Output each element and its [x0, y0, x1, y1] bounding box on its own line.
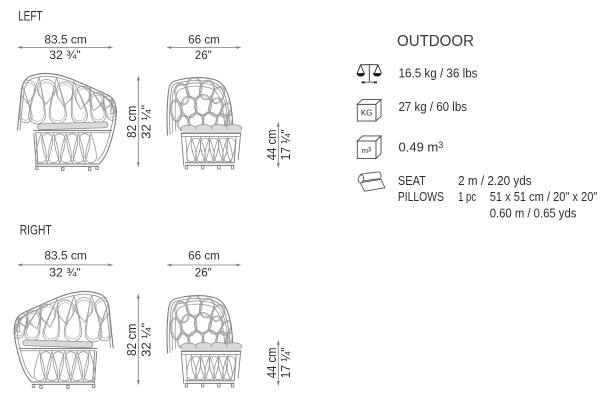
svg-text:OUTDOOR: OUTDOOR [397, 33, 474, 50]
svg-text:0.49 m3: 0.49 m3 [399, 139, 444, 154]
svg-text:RIGHT: RIGHT [20, 223, 52, 238]
svg-text:83.5 cm: 83.5 cm [44, 32, 87, 46]
svg-text:32 ¼": 32 ¼" [139, 323, 154, 357]
svg-text:32 ¼": 32 ¼" [139, 105, 154, 139]
svg-text:26": 26" [195, 265, 212, 279]
svg-text:66 cm: 66 cm [188, 32, 220, 46]
svg-text:26": 26" [195, 48, 212, 62]
svg-text:32 ¾": 32 ¾" [49, 265, 81, 279]
svg-text:0.60 m / 0.65 yds: 0.60 m / 0.65 yds [490, 205, 577, 220]
svg-text:1 pc: 1 pc [458, 189, 476, 204]
svg-text:2 m / 2.20 yds: 2 m / 2.20 yds [458, 173, 532, 188]
svg-text:KG: KG [361, 109, 373, 118]
svg-text:66 cm: 66 cm [188, 249, 220, 263]
svg-text:PILLOWS: PILLOWS [398, 189, 444, 204]
svg-text:83.5 cm: 83.5 cm [44, 249, 87, 263]
svg-text:32 ¾": 32 ¾" [49, 48, 81, 62]
svg-text:16.5 kg / 36 lbs: 16.5 kg / 36 lbs [399, 66, 478, 81]
svg-text:17 ¼": 17 ¼" [278, 129, 293, 160]
svg-text:51 x 51 cm / 20" x 20": 51 x 51 cm / 20" x 20" [490, 189, 598, 204]
svg-text:27 kg / 60 lbs: 27 kg / 60 lbs [399, 99, 468, 114]
svg-text:SEAT: SEAT [398, 173, 426, 188]
svg-text:44 cm: 44 cm [264, 347, 279, 378]
svg-text:44 cm: 44 cm [264, 129, 279, 160]
svg-text:17 ¼": 17 ¼" [278, 347, 293, 378]
svg-text:LEFT: LEFT [18, 9, 42, 24]
svg-text:82 cm: 82 cm [124, 324, 139, 357]
svg-text:82 cm: 82 cm [124, 106, 139, 139]
